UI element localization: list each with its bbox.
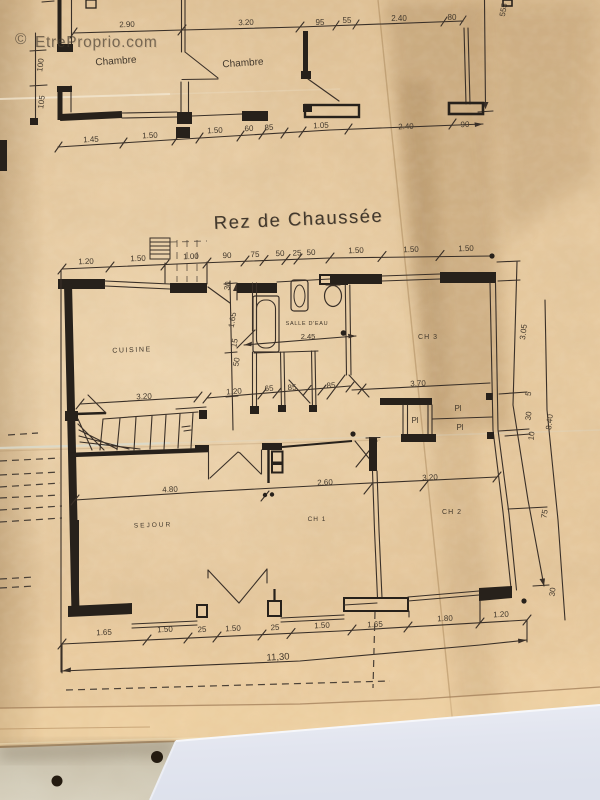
svg-text:105: 105 bbox=[36, 94, 47, 109]
svg-text:25: 25 bbox=[292, 248, 302, 257]
svg-text:1.50: 1.50 bbox=[314, 621, 331, 631]
svg-text:90: 90 bbox=[222, 251, 232, 260]
svg-text:85: 85 bbox=[264, 123, 274, 132]
svg-text:75: 75 bbox=[250, 250, 260, 259]
svg-text:2.40: 2.40 bbox=[398, 122, 415, 132]
svg-text:55: 55 bbox=[343, 16, 352, 25]
svg-text:2.90: 2.90 bbox=[119, 20, 135, 30]
svg-text:1.50: 1.50 bbox=[142, 131, 159, 141]
svg-text:1.50: 1.50 bbox=[130, 254, 146, 264]
svg-text:1.20: 1.20 bbox=[493, 610, 510, 620]
svg-text:50: 50 bbox=[306, 248, 316, 257]
svg-text:85: 85 bbox=[326, 381, 336, 391]
svg-text:95: 95 bbox=[316, 18, 325, 27]
svg-text:Pl: Pl bbox=[454, 404, 461, 413]
svg-text:3.70: 3.70 bbox=[410, 379, 427, 389]
svg-text:Pl: Pl bbox=[411, 416, 418, 425]
svg-text:©: © bbox=[15, 31, 27, 48]
svg-text:1.50: 1.50 bbox=[348, 246, 364, 256]
svg-text:1.65: 1.65 bbox=[96, 628, 113, 638]
svg-text:3.20: 3.20 bbox=[422, 473, 439, 483]
svg-text:1.65: 1.65 bbox=[367, 620, 384, 630]
svg-text:1.50: 1.50 bbox=[157, 625, 174, 635]
svg-text:CH 3: CH 3 bbox=[418, 334, 438, 341]
svg-text:60: 60 bbox=[244, 124, 254, 133]
svg-text:CH 2: CH 2 bbox=[442, 509, 462, 516]
svg-text:3.20: 3.20 bbox=[136, 392, 153, 402]
svg-text:8.40: 8.40 bbox=[544, 413, 555, 430]
svg-text:CH 1: CH 1 bbox=[308, 516, 327, 523]
svg-text:SALLE D'EAU: SALLE D'EAU bbox=[286, 321, 329, 327]
svg-text:4.80: 4.80 bbox=[162, 485, 179, 495]
svg-text:1.80: 1.80 bbox=[437, 614, 454, 624]
svg-text:65: 65 bbox=[264, 384, 274, 394]
svg-text:11,30: 11,30 bbox=[266, 651, 290, 663]
svg-text:1.05: 1.05 bbox=[313, 121, 330, 131]
svg-text:CUISINE: CUISINE bbox=[112, 346, 152, 354]
svg-text:2.60: 2.60 bbox=[317, 478, 334, 488]
svg-text:85: 85 bbox=[287, 383, 297, 393]
svg-text:EtreProprio.com: EtreProprio.com bbox=[35, 34, 157, 51]
svg-text:1.50: 1.50 bbox=[207, 126, 224, 136]
svg-text:1.50: 1.50 bbox=[458, 244, 474, 254]
svg-text:10: 10 bbox=[526, 430, 536, 440]
svg-text:30: 30 bbox=[523, 410, 533, 420]
svg-text:2.40: 2.40 bbox=[391, 14, 407, 23]
svg-text:1.20: 1.20 bbox=[226, 386, 243, 396]
svg-text:1.50: 1.50 bbox=[225, 624, 242, 634]
svg-text:50: 50 bbox=[275, 249, 285, 258]
svg-text:1.20: 1.20 bbox=[78, 257, 94, 267]
svg-text:Pl: Pl bbox=[456, 423, 463, 432]
svg-text:3.20: 3.20 bbox=[238, 18, 254, 28]
svg-text:100: 100 bbox=[35, 57, 46, 72]
svg-text:SEJOUR: SEJOUR bbox=[134, 521, 173, 529]
svg-text:30: 30 bbox=[547, 586, 557, 596]
svg-text:25: 25 bbox=[270, 623, 280, 632]
svg-text:80: 80 bbox=[448, 13, 457, 22]
svg-text:1.45: 1.45 bbox=[83, 135, 100, 145]
svg-text:25: 25 bbox=[197, 625, 207, 634]
svg-text:1.50: 1.50 bbox=[403, 245, 419, 255]
svg-text:90: 90 bbox=[460, 120, 470, 129]
